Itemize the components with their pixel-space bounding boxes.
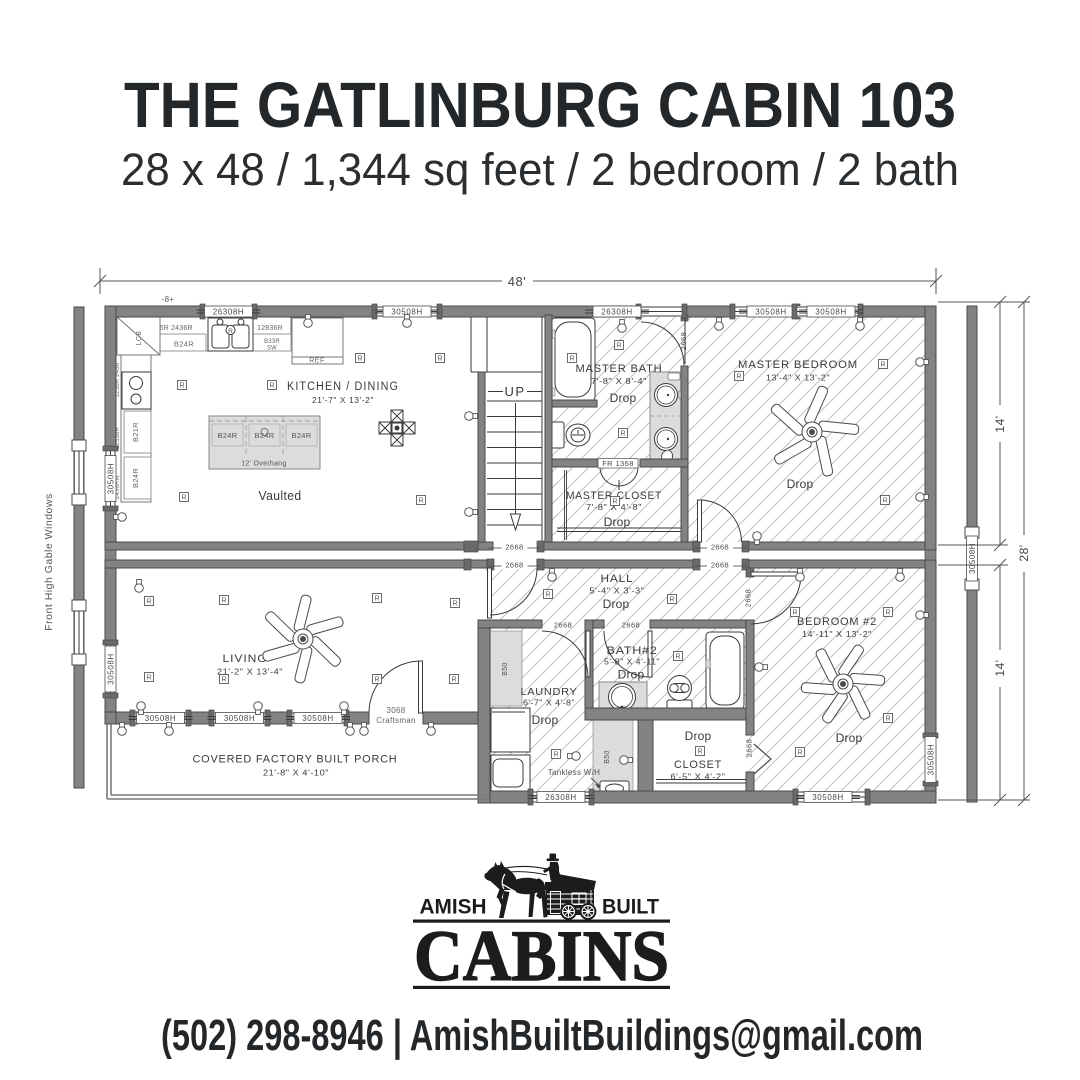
svg-text:6'-7" X 4'-8": 6'-7" X 4'-8": [523, 699, 575, 708]
svg-text:R: R: [675, 654, 680, 661]
svg-text:21'-7" X 13'-2": 21'-7" X 13'-2": [312, 395, 374, 405]
svg-text:B24R: B24R: [292, 431, 312, 440]
svg-text:R: R: [179, 383, 184, 390]
svg-text:B50: B50: [502, 662, 509, 675]
svg-text:B33R: B33R: [264, 339, 280, 345]
svg-text:LCB: LCB: [136, 331, 143, 346]
svg-text:30508H: 30508H: [812, 793, 844, 802]
svg-text:R: R: [437, 356, 442, 363]
svg-text:Craftsman: Craftsman: [376, 716, 416, 725]
svg-text:30508H: 30508H: [968, 543, 977, 574]
svg-text:MASTER BEDROOM: MASTER BEDROOM: [738, 359, 858, 371]
svg-text:12836R: 12836R: [257, 325, 283, 332]
svg-text:26308H: 26308H: [545, 793, 577, 802]
svg-text:2668: 2668: [622, 621, 640, 630]
svg-text:30508H: 30508H: [107, 653, 116, 685]
svg-text:R: R: [620, 431, 625, 438]
svg-text:BEDROOM #2: BEDROOM #2: [797, 616, 877, 628]
svg-text:R: R: [736, 374, 741, 381]
svg-text:2668: 2668: [554, 621, 572, 630]
svg-text:BATH#2: BATH#2: [607, 645, 658, 657]
svg-text:Drop: Drop: [836, 731, 863, 745]
svg-text:30508H: 30508H: [755, 308, 787, 317]
svg-text:CABINS: CABINS: [414, 916, 669, 996]
svg-text:R: R: [221, 598, 226, 605]
svg-text:Drop: Drop: [604, 515, 631, 529]
svg-text:14': 14': [993, 415, 1007, 432]
svg-text:R: R: [146, 675, 151, 682]
svg-text:R: R: [612, 499, 617, 506]
svg-text:THE GATLINBURG CABIN 103: THE GATLINBURG CABIN 103: [124, 69, 956, 141]
svg-text:Drop: Drop: [618, 668, 645, 682]
svg-text:2668: 2668: [505, 543, 523, 552]
svg-text:MASTER BATH: MASTER BATH: [576, 363, 663, 375]
svg-text:5'-8" X 4'-11": 5'-8" X 4'-11": [604, 658, 660, 667]
svg-text:B24R: B24R: [218, 431, 238, 440]
svg-text:R: R: [569, 356, 574, 363]
svg-text:LAUNDRY: LAUNDRY: [521, 687, 578, 698]
svg-text:Drop: Drop: [603, 597, 630, 611]
svg-text:12' Overhang: 12' Overhang: [241, 461, 286, 468]
svg-text:Drop: Drop: [532, 713, 559, 727]
svg-text:30508H: 30508H: [107, 463, 116, 495]
svg-text:LIVING: LIVING: [223, 653, 268, 665]
svg-text:R: R: [221, 677, 226, 684]
svg-text:14'-11" X 13'-2": 14'-11" X 13'-2": [802, 629, 872, 639]
svg-text:HALL: HALL: [601, 573, 634, 585]
svg-text:Tankless W/H: Tankless W/H: [548, 768, 601, 777]
svg-text:21'-8" X 4'-10": 21'-8" X 4'-10": [263, 768, 329, 778]
svg-text:B21R: B21R: [131, 422, 140, 442]
svg-text:B50: B50: [604, 750, 611, 763]
svg-text:R: R: [357, 356, 362, 363]
svg-text:Drop: Drop: [685, 729, 712, 743]
svg-text:7'-8" X 8'-4": 7'-8" X 8'-4": [591, 376, 647, 386]
svg-text:3068: 3068: [387, 706, 406, 715]
svg-text:2668: 2668: [505, 561, 523, 570]
svg-text:Vaulted: Vaulted: [259, 489, 302, 503]
svg-text:R: R: [792, 610, 797, 617]
svg-text:28': 28': [1017, 544, 1031, 561]
svg-text:R: R: [797, 750, 802, 757]
svg-text:14': 14': [993, 659, 1007, 676]
svg-text:6'-5" X 4'-2": 6'-5" X 4'-2": [671, 772, 726, 782]
svg-text:R: R: [553, 752, 558, 759]
svg-text:5'-4" X 3'-3": 5'-4" X 3'-3": [590, 586, 645, 596]
svg-text:-8+: -8+: [162, 295, 175, 304]
svg-text:26308H: 26308H: [213, 308, 245, 317]
svg-text:B24R: B24R: [174, 340, 194, 349]
svg-text:CLOSET: CLOSET: [674, 759, 722, 771]
svg-text:SW: SW: [267, 346, 277, 352]
svg-text:R: R: [885, 610, 890, 617]
svg-text:28 x 48 / 1,344 sq feet / 2 be: 28 x 48 / 1,344 sq feet / 2 bedroom / 2 …: [121, 144, 959, 195]
svg-text:R: R: [452, 601, 457, 608]
svg-text:13'-4" X 13'-2": 13'-4" X 13'-2": [766, 373, 830, 383]
svg-text:FR 1368: FR 1368: [602, 459, 634, 468]
svg-text:R: R: [228, 328, 233, 335]
svg-text:30508H: 30508H: [224, 714, 256, 723]
svg-text:26308H: 26308H: [601, 308, 633, 317]
svg-text:30508H: 30508H: [145, 714, 177, 723]
svg-text:R: R: [451, 677, 456, 684]
svg-text:Drop: Drop: [610, 391, 637, 405]
svg-text:R: R: [616, 343, 621, 350]
svg-text:30508H: 30508H: [927, 744, 936, 776]
svg-text:2668: 2668: [711, 561, 729, 570]
svg-text:2668: 2668: [679, 332, 688, 351]
svg-text:R: R: [374, 596, 379, 603]
svg-text:R: R: [880, 362, 885, 369]
svg-text:R: R: [545, 592, 550, 599]
svg-text:KITCHEN / DINING: KITCHEN / DINING: [287, 381, 399, 393]
svg-text:R: R: [885, 716, 890, 723]
svg-text:(502) 298-8946 | AmishBuiltBui: (502) 298-8946 | AmishBuiltBuildings@gma…: [161, 1011, 923, 1061]
svg-text:2668: 2668: [744, 589, 753, 608]
svg-text:48': 48': [508, 274, 526, 289]
svg-text:REF: REF: [309, 358, 325, 365]
svg-text:2668: 2668: [711, 543, 729, 552]
svg-text:R: R: [882, 498, 887, 505]
svg-text:R: R: [374, 677, 379, 684]
svg-text:30508H: 30508H: [815, 308, 847, 317]
svg-text:Drop: Drop: [787, 477, 814, 491]
svg-text:R: R: [146, 599, 151, 606]
svg-text:2668: 2668: [745, 739, 754, 758]
svg-text:R: R: [181, 495, 186, 502]
svg-text:R: R: [418, 498, 423, 505]
svg-text:R: R: [669, 597, 674, 604]
svg-text:B24R: B24R: [131, 468, 140, 488]
svg-text:R: R: [269, 383, 274, 390]
svg-text:30508H: 30508H: [302, 714, 334, 723]
svg-text:COVERED FACTORY BUILT PORCH: COVERED FACTORY BUILT PORCH: [193, 754, 398, 766]
svg-text:UP: UP: [504, 384, 525, 399]
svg-text:Front High Gable Windows: Front High Gable Windows: [43, 493, 55, 630]
svg-text:R: R: [697, 749, 702, 756]
